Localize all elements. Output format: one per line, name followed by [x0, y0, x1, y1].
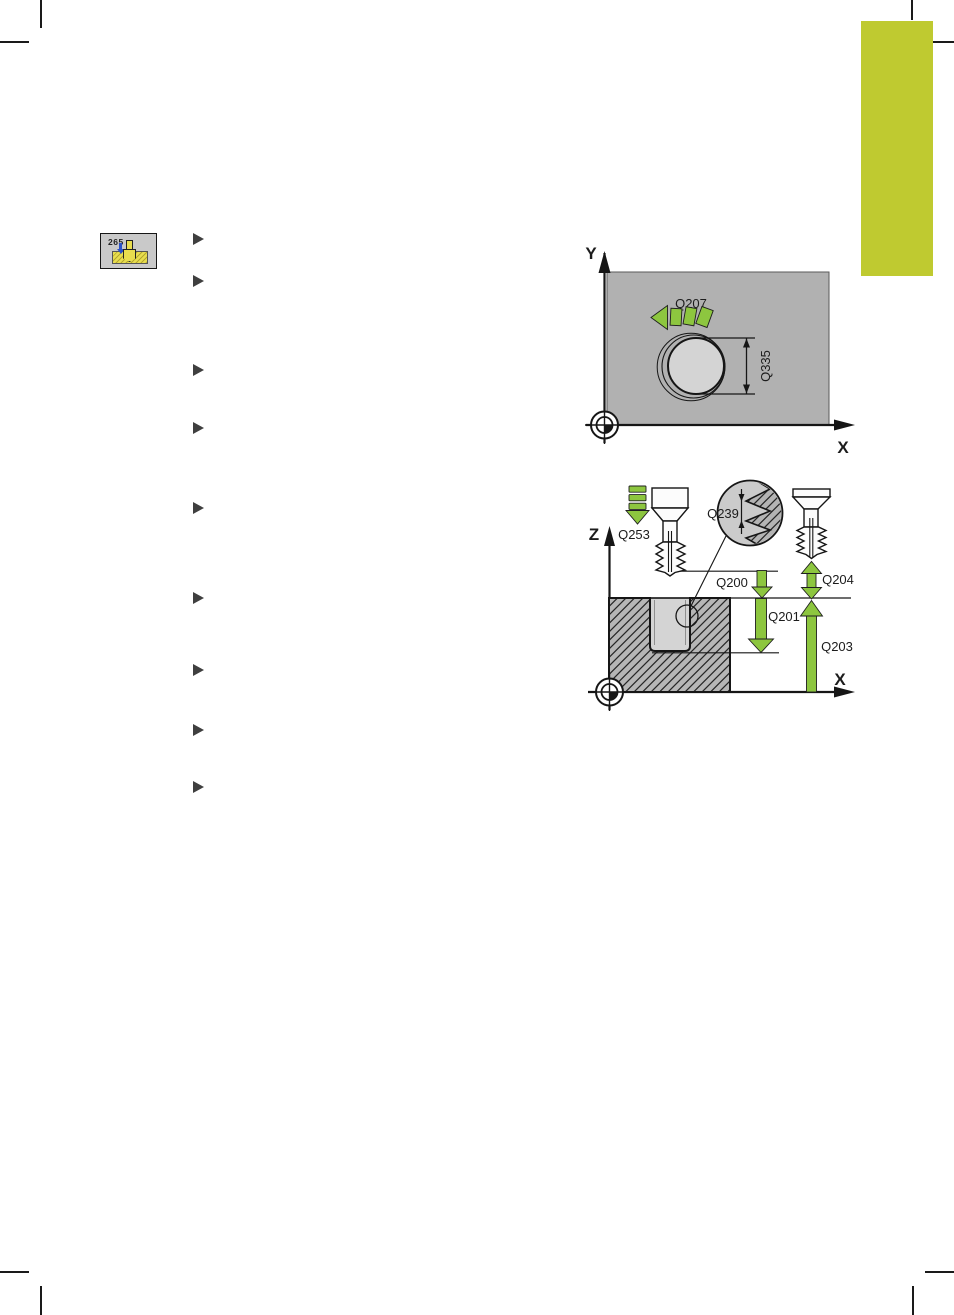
q200-arrow [752, 571, 772, 599]
q253-arrow [626, 486, 649, 524]
y-axis-arrowhead [599, 251, 611, 273]
crop-mark-bottom-right-v [912, 1286, 914, 1315]
crop-mark-top-left-v [40, 0, 42, 28]
bullet-marker [193, 275, 204, 287]
crop-mark-bottom-left-v [40, 1286, 42, 1315]
thread-tool-left [652, 488, 688, 576]
bullet-marker [193, 502, 204, 514]
q203-arrow [801, 601, 823, 693]
bullet-marker [193, 781, 204, 793]
bullet-marker [193, 422, 204, 434]
q239-label: Q239 [707, 506, 739, 521]
bullet-marker [193, 364, 204, 376]
bore-circle [668, 338, 724, 394]
q335-label: Q335 [758, 350, 773, 382]
z-axis-arrowhead [604, 526, 615, 546]
crop-mark-top-left-h [0, 41, 29, 43]
bullet-marker [193, 664, 204, 676]
bullet-marker [193, 233, 204, 245]
crop-mark-top-right-v [911, 0, 913, 20]
q201-arrow [749, 599, 774, 653]
z-axis-label: Z [589, 525, 599, 544]
crop-mark-bottom-right-h [925, 1271, 954, 1273]
q203-label: Q203 [821, 639, 853, 654]
pitch-detail-circle: Q239 [707, 481, 784, 547]
x-axis-label: X [834, 670, 846, 689]
q204-arrow [802, 562, 822, 600]
thread-tool-right [793, 489, 830, 559]
y-axis-label: Y [585, 244, 597, 263]
crop-mark-bottom-left-h [0, 1271, 29, 1273]
bullet-marker [193, 724, 204, 736]
q204-label: Q204 [822, 572, 854, 587]
manual-page: 265 Y X Q335 [0, 0, 954, 1315]
x-axis-arrowhead [834, 420, 855, 431]
diagram-plan-view-xy: Y X Q335 Q207 [560, 225, 890, 475]
diagram-section-view-zx: Z X Q239 [560, 455, 890, 725]
q201-label: Q201 [768, 609, 800, 624]
bullet-marker [193, 592, 204, 604]
q200-label: Q200 [716, 575, 748, 590]
crop-mark-top-right-h [933, 41, 954, 43]
cycle-265-softkey-icon: 265 [100, 233, 157, 269]
q253-label: Q253 [618, 527, 650, 542]
